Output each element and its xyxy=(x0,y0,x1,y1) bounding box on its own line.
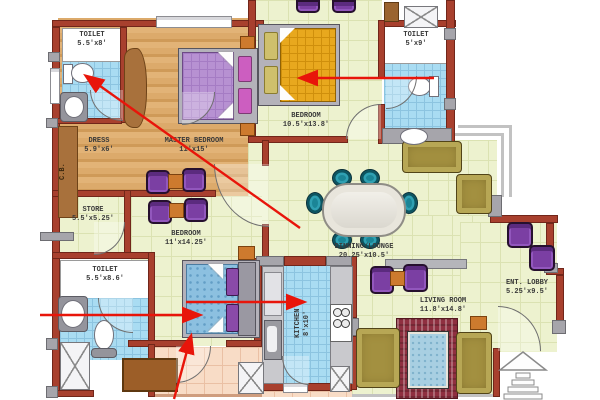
door-leaf xyxy=(384,2,399,22)
terrace-rail xyxy=(458,125,512,128)
chair xyxy=(529,245,555,271)
bed-fold xyxy=(280,85,295,100)
room-size: 10.5'x13.8' xyxy=(283,121,329,129)
wall-segment xyxy=(262,140,269,166)
room-label-living-room: LIVING ROOM 11.8'x14.8' xyxy=(396,297,490,315)
nightstand xyxy=(240,36,255,49)
room-size: 11'x15' xyxy=(179,146,208,154)
room-name: STORE xyxy=(82,206,103,214)
shaft-x-icon xyxy=(330,366,350,392)
room-label-dress: DRESS 5.9'x6' xyxy=(66,137,132,155)
terrace-rail xyxy=(501,133,504,197)
wall-segment xyxy=(446,0,455,143)
wc-icon xyxy=(429,76,439,97)
room-label-master-bedroom: MASTER BEDROOM 11'x15' xyxy=(146,137,242,155)
bed-fold xyxy=(218,103,233,118)
room-name: ENT. LOBBY xyxy=(506,279,548,287)
room-name: TOILET xyxy=(403,31,428,39)
room-name: BEDROOM xyxy=(171,230,200,238)
room-name: BEDROOM xyxy=(291,112,320,120)
sofa xyxy=(456,332,492,394)
room-size: 5.5'x8.6' xyxy=(86,275,124,283)
wall-segment xyxy=(124,190,131,258)
column-segment xyxy=(46,338,58,350)
wc-icon xyxy=(71,63,94,83)
sink-icon xyxy=(61,300,85,328)
room-name: LIVING ROOM xyxy=(420,297,466,305)
sink-icon xyxy=(64,96,84,118)
room-name: KITCHEN xyxy=(294,308,302,337)
sofa xyxy=(356,328,400,388)
wall-segment xyxy=(262,224,269,260)
column-segment xyxy=(444,98,456,110)
room-name: DINNING/LOUNGE xyxy=(335,243,394,251)
terrace-rail xyxy=(509,125,512,197)
window xyxy=(156,16,232,28)
wardrobe xyxy=(122,358,178,392)
shaft-x-icon xyxy=(238,362,264,394)
pillow xyxy=(226,304,239,332)
room-label-toilet-top-right: TOILET 5'x9' xyxy=(384,31,448,49)
bed-fold xyxy=(218,52,233,67)
stove-icon xyxy=(330,304,352,342)
column-segment xyxy=(46,386,58,398)
chair xyxy=(184,198,208,222)
rug-center xyxy=(408,332,448,388)
chair xyxy=(182,168,206,192)
chair xyxy=(146,170,170,194)
room-label-toilet-bottom-left: TOILET 5.5'x8.6' xyxy=(60,266,150,284)
bed-fold xyxy=(208,317,223,332)
stairs-icon xyxy=(498,350,548,400)
bed-fold xyxy=(280,28,295,43)
room-name: TOILET xyxy=(79,31,104,39)
room-label-bedroom-top: BEDROOM 10.5'x13.8' xyxy=(264,112,348,130)
room-size: 11'x14.25' xyxy=(165,239,207,247)
wardrobe xyxy=(124,48,147,128)
fridge xyxy=(264,272,282,316)
room-size: 20.25'x10.5' xyxy=(339,252,389,260)
armchair xyxy=(456,174,492,214)
room-size: 5.5'x8' xyxy=(77,40,106,48)
shaft-x-icon xyxy=(60,342,90,390)
side-table xyxy=(470,316,487,330)
window xyxy=(50,68,60,104)
shaft-x-icon xyxy=(404,6,438,28)
pillow xyxy=(226,268,239,296)
nightstand xyxy=(238,246,255,260)
room-size: 8'x10' xyxy=(303,310,311,335)
column-segment xyxy=(40,232,74,241)
wall-segment xyxy=(378,20,385,78)
bed-fold xyxy=(208,264,223,279)
room-size: 5.9'x6' xyxy=(84,146,113,154)
room-size: 5.25'x9.5' xyxy=(506,288,548,296)
sink-icon xyxy=(400,128,428,145)
pillow xyxy=(238,56,252,82)
sofa xyxy=(402,141,462,173)
cupboard-label: C.B. xyxy=(59,164,67,181)
room-label-kitchen: KITCHEN 8'x10' xyxy=(294,296,314,350)
wall-segment xyxy=(52,390,94,397)
pillow xyxy=(264,66,278,94)
chair xyxy=(332,0,356,13)
room-size: 11.8'x14.8' xyxy=(420,306,466,314)
dining-table xyxy=(322,183,406,237)
chair xyxy=(403,264,428,292)
nightstand xyxy=(240,123,255,136)
wc-icon xyxy=(91,348,117,358)
room-name: TOILET xyxy=(92,266,117,274)
room-name: DRESS xyxy=(88,137,109,145)
floor-plan: C.B. xyxy=(0,0,600,400)
pillow xyxy=(238,88,252,114)
kitchen-sink-basin xyxy=(267,326,277,352)
bed-headboard xyxy=(238,262,256,336)
room-size: 5'x9' xyxy=(405,40,426,48)
room-size: 5.5'x5.25' xyxy=(72,215,114,223)
side-table xyxy=(169,203,184,218)
balcony-rail xyxy=(150,394,262,397)
room-label-dining-lounge: DINNING/LOUNGE 20.25'x10.5' xyxy=(306,243,422,261)
side-table xyxy=(168,174,183,189)
wall-segment xyxy=(226,340,262,347)
column-segment xyxy=(48,52,60,62)
room-label-ent-lobby: ENT. LOBBY 5.25'x9.5' xyxy=(492,279,562,297)
room-label-bedroom-mid: BEDROOM 11'x14.25' xyxy=(138,230,234,248)
room-name: MASTER BEDROOM xyxy=(165,137,224,145)
terrace-rail xyxy=(452,133,502,136)
pillow xyxy=(264,32,278,60)
room-label-store: STORE 5.5'x5.25' xyxy=(56,206,130,224)
chair xyxy=(507,222,533,248)
column-segment xyxy=(256,256,284,266)
side-table xyxy=(390,271,405,286)
column-segment xyxy=(552,320,566,334)
room-label-toilet-top-left: TOILET 5.5'x8' xyxy=(62,31,122,49)
column-segment xyxy=(46,118,58,128)
chair xyxy=(296,0,320,13)
